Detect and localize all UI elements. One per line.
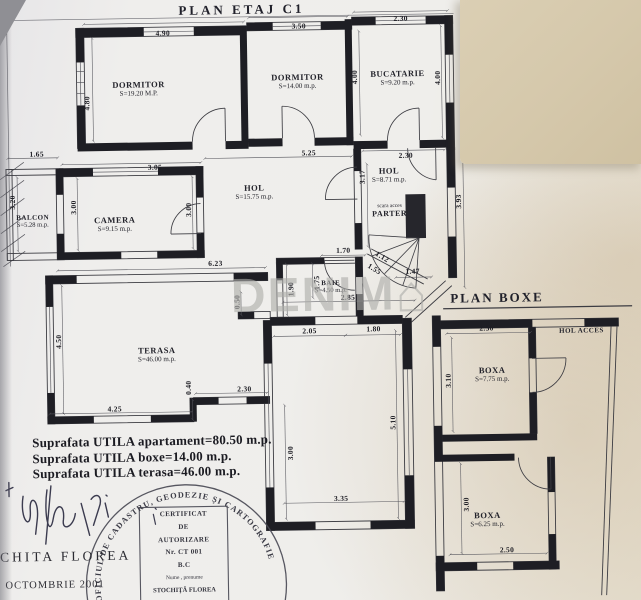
room-name: HOL: [372, 165, 406, 176]
paper-corner-fold: [0, 0, 26, 46]
dim-bucatarie-top: 2.30: [393, 14, 407, 23]
footer-name: CHITA FLOREA: [0, 548, 131, 566]
dim-stairs-right: 3.93: [454, 194, 463, 208]
dim-terasa-step: 0.40: [184, 381, 193, 395]
room-label-dormitor1: DORMITOR S=19.20 M.P.: [112, 79, 165, 98]
dim-boxa2-bottom: 2.50: [500, 545, 514, 554]
dim-boxa2-left: 3.00: [462, 497, 471, 511]
room-area: S=9.15 m.p.: [94, 225, 135, 234]
room-label-hol2: HOL S=8.71 m.p.: [372, 165, 407, 184]
room-label-boxa1: BOXA S=7.75 m.p.: [475, 365, 510, 384]
dim-lower-left: 3.00: [286, 446, 295, 460]
room-area: S=8.71 m.p.: [372, 175, 406, 184]
room-label-hol: HOL S=15.75 m.p.: [235, 182, 273, 201]
dim-terasa-bottom2: 2.30: [237, 384, 251, 393]
room-area: S=46.00 m.p.: [138, 355, 176, 364]
dim-hol2-left: 3.17: [357, 170, 366, 184]
room-label-terasa: TERASA S=46.00 m.p.: [138, 345, 176, 364]
dim-terasa-bottom: 4.25: [107, 404, 121, 413]
dim-camera-top: 3.05: [148, 163, 162, 172]
area-summary: Suprafata UTILA apartament=80.50 m.p. Su…: [32, 431, 272, 481]
room-area: S=7.75 m.p.: [475, 375, 509, 384]
room-name: TERASA: [138, 345, 176, 356]
room-label-scara-acces: scara acces PARTER: [372, 203, 407, 219]
dim-camera-right: 3.00: [184, 203, 193, 217]
room-name: BOXA: [470, 510, 504, 521]
dim-hol2-top: 2.30: [399, 151, 413, 160]
dim-lower-right: 5.10: [388, 415, 397, 429]
room-name: HOL ACCES: [559, 326, 604, 335]
room-label-balcon: BALCON S=5.28 m.p.: [16, 213, 49, 229]
dim-dormitor2-right: 4.00: [350, 70, 359, 84]
plan-boxe-title: PLAN BOXE: [450, 289, 544, 306]
watermark-text: DENIM: [231, 268, 396, 324]
dim-lower-bottom: 3.35: [334, 494, 348, 503]
stamp-line7: STOCHIŢĂ FLOREA: [141, 584, 227, 598]
dim-hol-bottom: 1.70: [336, 246, 350, 255]
dim-dormitor2-top: 3.50: [291, 21, 305, 30]
scanned-floor-plan-document: OFICIUL DE CADASTRU, GEODEZIE ŞI CARTOGR…: [0, 0, 641, 600]
dim-balcon-top: 1.65: [29, 150, 43, 159]
room-label-bucatarie: BUCATARIE S=9.20 m.p.: [370, 68, 425, 87]
room-name: BOXA: [475, 365, 509, 376]
dim-camera-left: 3.00: [69, 200, 78, 214]
sheet-frame-lines: [7, 14, 458, 267]
dim-boxa1-top: 2.50: [479, 323, 493, 332]
room-label-hol-acces: HOL ACCES: [559, 326, 604, 335]
room-area: S=5.28 m.p.: [16, 221, 49, 229]
plan-title: PLAN ETAJ C1: [178, 1, 304, 19]
dim-dormitor1-top: 4.90: [156, 29, 170, 38]
room-name: BUCATARIE: [370, 68, 424, 79]
room-label-dormitor2: DORMITOR S=14.00 m.p.: [271, 72, 324, 91]
dim-lower-top-right: 1.80: [366, 324, 380, 333]
room-area: S=15.75 m.p.: [235, 192, 273, 201]
scara-acces-line2: PARTER: [372, 209, 407, 219]
room-label-boxa2: BOXA S=6.25 m.p.: [470, 510, 505, 529]
dim-bucatarie-right: 4.00: [433, 71, 442, 85]
room-area: S=9.20 m.p.: [370, 78, 424, 87]
room-area: S=14.00 m.p.: [271, 82, 324, 91]
dim-boxa1-left: 3.10: [444, 373, 453, 387]
stamp-certificate-box: CERTIFICAT DE AUTORIZARE Nr. CT 001 B.C …: [140, 507, 227, 598]
dim-terasa-top: 6.23: [208, 259, 222, 268]
room-label-camera: CAMERA S=9.15 m.p.: [94, 215, 136, 234]
dim-hol-top: 5.25: [301, 148, 315, 157]
house-icon: ⌂: [395, 265, 429, 324]
footer-date: OCTOMBRIE 2001: [5, 579, 104, 592]
dim-dormitor1-left: 4.80: [82, 96, 91, 110]
room-area: S=6.25 m.p.: [470, 520, 504, 529]
dim-lower-top-left: 2.05: [302, 326, 316, 335]
cover-card: [460, 0, 641, 164]
paper-left-edge-shadow: [0, 0, 12, 600]
room-name: HOL: [235, 182, 273, 193]
watermark: DENIM⌂: [230, 264, 429, 327]
dim-terasa-left: 4.50: [54, 335, 63, 349]
room-name: CAMERA: [94, 215, 135, 226]
room-area: S=19.20 M.P.: [112, 89, 165, 98]
